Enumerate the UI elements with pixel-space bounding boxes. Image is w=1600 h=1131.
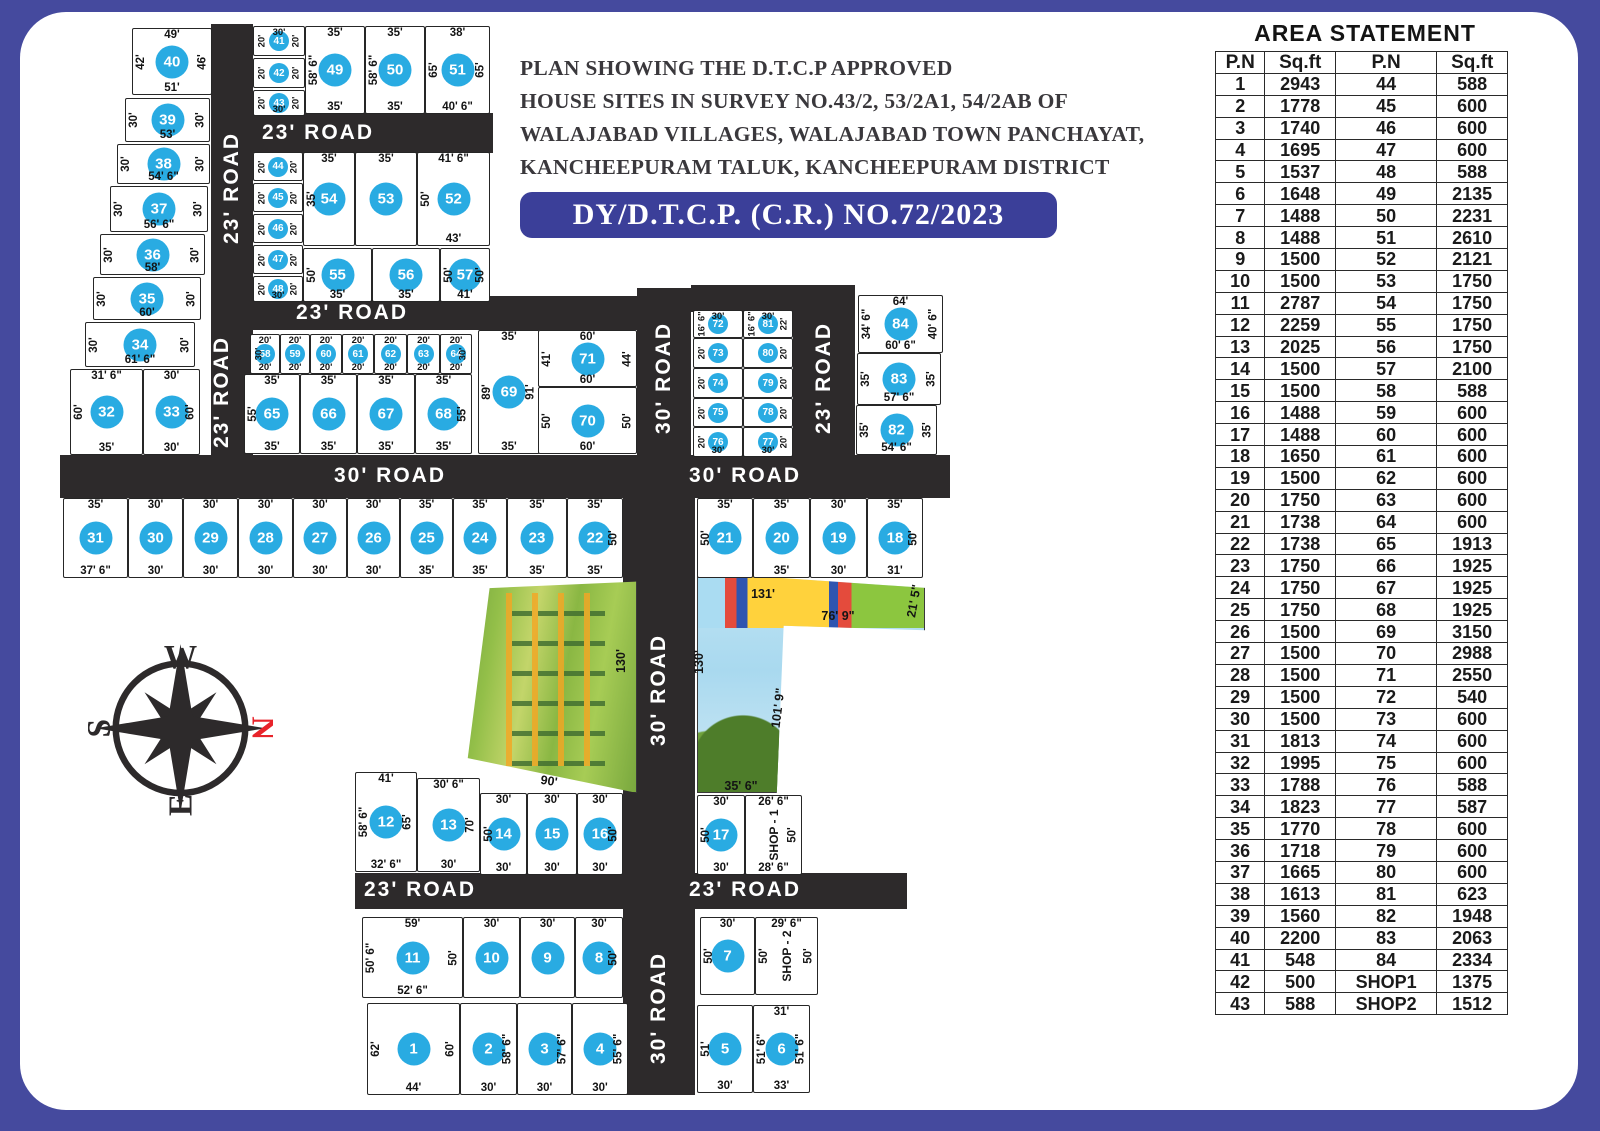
plot-13: 1330' 6"70'30' <box>417 778 480 872</box>
area-statement: AREA STATEMENT P.N Sq.ft P.N Sq.ft 12943… <box>1215 20 1515 1015</box>
plot-81: 8130'16' 6"22' <box>743 310 793 338</box>
dimension-label: 30' <box>592 794 608 806</box>
cell-sqft: 1488 <box>1265 424 1336 446</box>
cell-sqft: 1500 <box>1265 621 1336 643</box>
dimension-label: 30' <box>258 565 274 577</box>
cell-plot-number: 28 <box>1216 664 1265 686</box>
dimension-label: 35' <box>264 441 280 453</box>
dimension-label: 31' <box>887 565 903 577</box>
cell-plot-number: 44 <box>1336 73 1437 95</box>
cell-sqft: 1375 <box>1437 971 1508 993</box>
table-row: 19150062600 <box>1216 467 1508 489</box>
dimension-label: 65' <box>428 62 440 78</box>
plot-80: 8020' <box>743 338 793 368</box>
plot-number-74: 74 <box>708 373 728 393</box>
dimension-label: 30' <box>496 862 512 874</box>
dimension-label: 60' <box>73 404 85 420</box>
cell-sqft: 2943 <box>1265 73 1336 95</box>
table-row: 31181374600 <box>1216 730 1508 752</box>
dimension-label: 58' 6" <box>358 807 370 838</box>
plot-27: 2730'30' <box>293 498 347 578</box>
dimension-label: 50' 6" <box>365 942 377 973</box>
plot-62: 6220'20' <box>374 334 407 374</box>
plan-title-line: WALAJABAD VILLAGES, WALAJABAD TOWN PANCH… <box>520 118 1080 151</box>
cell-sqft: 600 <box>1437 117 1508 139</box>
dimension-label: 22' <box>779 318 790 331</box>
dimension-label: 35' <box>330 289 346 301</box>
dimension-label: 53' <box>160 129 176 141</box>
road-label: 23' ROAD <box>689 878 801 902</box>
dimension-label: 30' <box>120 156 132 172</box>
cell-plot-number: 60 <box>1336 424 1437 446</box>
cell-sqft: 1537 <box>1265 161 1336 183</box>
dimension-label: 20' <box>257 67 268 80</box>
dimension-label: 28' 6" <box>758 862 789 874</box>
plot-number-2: 2 <box>472 1033 505 1066</box>
cell-sqft: 1488 <box>1265 227 1336 249</box>
cell-plot-number: 25 <box>1216 599 1265 621</box>
park-dimension-label: 90' <box>540 773 559 789</box>
cell-plot-number: 14 <box>1216 358 1265 380</box>
dimension-label: 35' <box>859 422 871 438</box>
dimension-label: 30' <box>441 859 457 871</box>
dimension-label: 30' <box>712 311 725 322</box>
cell-plot-number: 35 <box>1216 818 1265 840</box>
dimension-label: 35' <box>378 375 394 387</box>
dimension-label: 70' <box>465 817 477 833</box>
dimension-label: 50' <box>908 530 920 546</box>
cell-plot-number: 19 <box>1216 467 1265 489</box>
plot-11: 1159'50' 6"50'52' 6" <box>362 917 463 998</box>
cell-plot-number: 75 <box>1336 752 1437 774</box>
dimension-label: 60' <box>139 307 155 319</box>
cell-plot-number: 22 <box>1216 533 1265 555</box>
cell-plot-number: 70 <box>1336 643 1437 665</box>
road <box>60 455 950 498</box>
plan-title-line: PLAN SHOWING THE D.T.C.P APPROVED <box>520 52 1080 85</box>
dimension-label: 55' <box>247 406 259 422</box>
dimension-label: 30' <box>481 1082 497 1094</box>
cell-sqft: 588 <box>1437 161 1508 183</box>
cell-sqft: 1750 <box>1265 489 1336 511</box>
cell-sqft: 1995 <box>1265 752 1336 774</box>
dimension-label: 30' <box>762 311 775 322</box>
plot-51: 5138'65'65'40' 6" <box>425 26 490 114</box>
cell-plot-number: 55 <box>1336 314 1437 336</box>
cell-plot-number: 65 <box>1336 533 1437 555</box>
cell-plot-number: 42 <box>1216 971 1265 993</box>
plot-38: 3830'54' 6"30' <box>117 144 210 184</box>
cell-sqft: 1613 <box>1265 883 1336 905</box>
dimension-label: 30' <box>203 499 219 511</box>
compass-letter-west: W <box>164 639 197 676</box>
plot-25: 2535'35' <box>400 498 453 578</box>
plot-53: 5335' <box>355 152 417 246</box>
plot-number-79: 79 <box>758 373 778 393</box>
dimension-label: 30' <box>113 201 125 217</box>
cell-plot-number: 3 <box>1216 117 1265 139</box>
dimension-label: 50' <box>608 530 620 546</box>
plot-number-56: 56 <box>390 259 423 292</box>
dimension-label: 20' <box>450 335 463 346</box>
table-row: 20175063600 <box>1216 489 1508 511</box>
plot-number-10: 10 <box>475 941 508 974</box>
plot-21: 2135'50' <box>697 498 753 578</box>
cell-plot-number: 52 <box>1336 249 1437 271</box>
dimension-label: 30' <box>592 1082 608 1094</box>
plot-15: 1530'30' <box>527 793 577 875</box>
dimension-label: 20' <box>257 283 268 296</box>
road-label: 30' ROAD <box>689 464 801 488</box>
cell-sqft: 1778 <box>1265 95 1336 117</box>
plot-number-12: 12 <box>370 806 403 839</box>
dimension-label: 60' <box>445 1041 457 1057</box>
dimension-label: 30' <box>312 499 328 511</box>
dimension-label: 34' 6" <box>861 309 873 340</box>
plot-number-70: 70 <box>571 404 604 437</box>
plot-number-60: 60 <box>316 344 336 364</box>
cell-sqft: 2231 <box>1437 205 1508 227</box>
dimension-label: 41' <box>378 773 394 785</box>
cell-sqft: 600 <box>1437 752 1508 774</box>
cell-sqft: 600 <box>1437 95 1508 117</box>
road-label: 23' ROAD <box>220 132 244 244</box>
cell-sqft: 600 <box>1437 139 1508 161</box>
dimension-label: 57' 6" <box>557 1034 569 1065</box>
cell-sqft: 1650 <box>1265 446 1336 468</box>
cell-sqft: 1488 <box>1265 402 1336 424</box>
cell-sqft: 1925 <box>1437 599 1508 621</box>
cell-sqft: 1718 <box>1265 840 1336 862</box>
dimension-label: 46' <box>197 54 209 70</box>
cell-plot-number: 73 <box>1336 708 1437 730</box>
cell-plot-number: 6 <box>1216 183 1265 205</box>
cell-plot-number: 43 <box>1216 993 1265 1015</box>
cell-sqft: 587 <box>1437 796 1508 818</box>
cell-sqft: 1695 <box>1265 139 1336 161</box>
plot-number-46: 46 <box>268 219 288 239</box>
plot-69: 6935'89'91'35' <box>478 330 540 454</box>
plan-title: PLAN SHOWING THE D.T.C.P APPROVED HOUSE … <box>520 52 1080 184</box>
dimension-label: 35' <box>774 499 790 511</box>
dimension-label: 20' <box>289 222 300 235</box>
cell-plot-number: 59 <box>1336 402 1437 424</box>
table-row: 15150058588 <box>1216 380 1508 402</box>
plot-2: 258' 6"30' <box>460 1003 517 1095</box>
table-row: 71488502231 <box>1216 205 1508 227</box>
cell-sqft: 2025 <box>1265 336 1336 358</box>
dimension-label: 50' <box>700 827 712 843</box>
plot-26: 2630'30' <box>347 498 400 578</box>
cell-sqft: 2550 <box>1437 664 1508 686</box>
dimension-label: 30' <box>544 794 560 806</box>
cell-plot-number: 17 <box>1216 424 1265 446</box>
dimension-label: 20' <box>779 406 790 419</box>
dimension-label: 41' <box>457 289 473 301</box>
plot-number-66: 66 <box>312 398 345 431</box>
dimension-label: 30' <box>540 918 556 930</box>
cell-sqft: 1648 <box>1265 183 1336 205</box>
cell-plot-number: 74 <box>1336 730 1437 752</box>
dimension-label: 40' 6" <box>928 309 940 340</box>
dimension-label: 20' <box>697 436 708 449</box>
plot-number-11: 11 <box>396 941 429 974</box>
cell-sqft: 600 <box>1437 424 1508 446</box>
cell-plot-number: 29 <box>1216 686 1265 708</box>
cell-sqft: 600 <box>1437 861 1508 883</box>
dimension-label: 30' <box>496 794 512 806</box>
cell-sqft: 1665 <box>1265 861 1336 883</box>
park-dimension-label: 76' 9" <box>821 609 854 623</box>
cell-plot-number: 31 <box>1216 730 1265 752</box>
dimension-label: 30' <box>831 565 847 577</box>
dimension-label: 20' <box>289 160 300 173</box>
plot-49: 4935'58' 6"35' <box>305 26 365 114</box>
plot-16: 1630'50'30' <box>577 793 623 875</box>
dimension-label: 31' <box>774 1006 790 1018</box>
plot-number-61: 61 <box>348 344 368 364</box>
cell-sqft: 1750 <box>1437 270 1508 292</box>
plot-83: 8335'57' 6"35' <box>857 353 941 405</box>
plot-number-59: 59 <box>285 344 305 364</box>
plot-18: 1835'50'31' <box>867 498 923 578</box>
dimension-label: 30' <box>148 499 164 511</box>
cell-sqft: 2100 <box>1437 358 1508 380</box>
cell-plot-number: 53 <box>1336 270 1437 292</box>
plot-73: 7320' <box>693 338 743 368</box>
dimension-label: 26' 6" <box>758 796 789 808</box>
cell-sqft: 600 <box>1437 467 1508 489</box>
dimension-label: 50' <box>541 413 553 429</box>
dimension-label: 35' <box>717 499 733 511</box>
plot-36: 3630'58'30' <box>100 234 205 275</box>
dimension-label: 30' <box>366 565 382 577</box>
plot-54: 5435'35' <box>303 152 355 246</box>
dimension-label: 50' <box>443 267 455 283</box>
dimension-label: 20' <box>291 67 302 80</box>
dimension-label: 35' <box>88 499 104 511</box>
plot-63: 6320'20' <box>407 334 440 374</box>
plot-19: 1930'30' <box>810 498 867 578</box>
plot-45: 4520'20' <box>253 183 303 212</box>
dimension-label: 50' <box>483 826 495 842</box>
cell-plot-number: 49 <box>1336 183 1437 205</box>
table-row: 42500SHOP11375 <box>1216 971 1508 993</box>
table-row: 21173864600 <box>1216 511 1508 533</box>
plot-number-9: 9 <box>531 941 564 974</box>
plot-number-20: 20 <box>765 522 798 555</box>
dimension-label: 60' <box>580 441 596 453</box>
plot-10: 1030' <box>463 917 520 998</box>
plot-32: 3231' 6"60'35' <box>70 369 143 455</box>
cell-plot-number: 36 <box>1216 840 1265 862</box>
dimension-label: 30' <box>831 499 847 511</box>
road-label: 23' ROAD <box>364 878 476 902</box>
cell-sqft: 623 <box>1437 883 1508 905</box>
dimension-label: 60' 6" <box>885 340 916 352</box>
plot-number-69: 69 <box>493 376 526 409</box>
dimension-label: 30' <box>591 918 607 930</box>
cell-sqft: 600 <box>1437 446 1508 468</box>
plot-number-53: 53 <box>370 183 403 216</box>
park-2 <box>697 570 925 793</box>
dimension-label: 16' 6" <box>747 311 758 336</box>
dimension-label: 44' <box>406 1082 422 1094</box>
cell-plot-number: 9 <box>1216 249 1265 271</box>
dimension-label: 20' <box>384 362 397 373</box>
table-row: 402200832063 <box>1216 927 1508 949</box>
cell-plot-number: 56 <box>1336 336 1437 358</box>
plot-number-49: 49 <box>319 54 352 87</box>
dimension-label: 62' <box>370 1041 382 1057</box>
dimension-label: 38' <box>450 27 466 39</box>
plot-79: 7920' <box>743 368 793 398</box>
plot-40: 4049'42'51'46' <box>132 28 212 95</box>
cell-plot-number: 69 <box>1336 621 1437 643</box>
plot-37: 3730'56' 6"30' <box>110 186 208 232</box>
table-row: 81488512610 <box>1216 227 1508 249</box>
cell-plot-number: 48 <box>1336 161 1437 183</box>
table-row: 281500712550 <box>1216 664 1508 686</box>
plot-number-4: 4 <box>584 1033 617 1066</box>
plot-77: 7720'30' <box>743 427 793 457</box>
dimension-label: 35' <box>587 565 603 577</box>
road-label: 30' ROAD <box>652 322 676 434</box>
plot-number-75: 75 <box>708 403 728 423</box>
table-row: 18165061600 <box>1216 446 1508 468</box>
dimension-label: 35' <box>472 499 488 511</box>
plot-number-52: 52 <box>437 183 470 216</box>
dimension-label: 30' <box>712 445 725 456</box>
dimension-label: 30' <box>180 337 192 353</box>
cell-plot-number: 57 <box>1336 358 1437 380</box>
cell-plot-number: 46 <box>1336 117 1437 139</box>
dimension-label: 30' <box>713 796 729 808</box>
dimension-label: 20' <box>259 362 272 373</box>
dimension-label: 35' <box>398 289 414 301</box>
table-row: 30150073600 <box>1216 708 1508 730</box>
dimension-label: 30' <box>713 862 729 874</box>
plot-39: 3930'53'30' <box>125 98 210 142</box>
cell-plot-number: 81 <box>1336 883 1437 905</box>
cell-plot-number: 39 <box>1216 905 1265 927</box>
plot-4: 455' 6"30' <box>572 1003 628 1095</box>
dimension-label: 30' <box>148 565 164 577</box>
dimension-label: 30' <box>312 565 328 577</box>
plan-title-line: KANCHEEPURAM TALUK, KANCHEEPURAM DISTRIC… <box>520 151 1080 184</box>
table-row: 43588SHOP21512 <box>1216 993 1508 1015</box>
cell-sqft: 600 <box>1437 818 1508 840</box>
col-header-pn: P.N <box>1336 52 1437 74</box>
cell-sqft: 588 <box>1437 73 1508 95</box>
dimension-label: 20' <box>450 362 463 373</box>
cell-plot-number: 12 <box>1216 314 1265 336</box>
cell-plot-number: 10 <box>1216 270 1265 292</box>
cell-sqft: 1512 <box>1437 993 1508 1015</box>
dimension-label: 31' 6" <box>91 370 122 382</box>
cell-sqft: 1823 <box>1265 796 1336 818</box>
dimension-label: 50' <box>787 827 799 843</box>
plot-74: 7420' <box>693 368 743 398</box>
cell-sqft: 1500 <box>1265 358 1336 380</box>
cell-plot-number: 15 <box>1216 380 1265 402</box>
plot-41: 4130'20'20' <box>253 26 305 56</box>
cell-sqft: 1500 <box>1265 380 1336 402</box>
dimension-label: 51' 6" <box>795 1034 807 1065</box>
cell-plot-number: 21 <box>1216 511 1265 533</box>
plot-9: 930' <box>520 917 575 998</box>
park-dimension-label: 131' <box>751 587 775 601</box>
table-row: 101500531750 <box>1216 270 1508 292</box>
plot-number-24: 24 <box>464 522 497 555</box>
dimension-label: 35' <box>529 565 545 577</box>
plot-shop-label: SHOP - 1 <box>767 809 781 860</box>
dimension-label: 35' <box>419 565 435 577</box>
cell-sqft: 1500 <box>1265 643 1336 665</box>
cell-plot-number: 5 <box>1216 161 1265 183</box>
table-row: 231750661925 <box>1216 555 1508 577</box>
plot-number-47: 47 <box>268 250 288 270</box>
col-header-sqft: Sq.ft <box>1265 52 1336 74</box>
cell-plot-number: SHOP1 <box>1336 971 1437 993</box>
dimension-label: 54' 6" <box>881 442 912 454</box>
plot-65: 6535'55'35' <box>244 374 300 454</box>
road-label: 23' ROAD <box>210 336 234 448</box>
table-row: 16148859600 <box>1216 402 1508 424</box>
dimension-label: 20' <box>289 191 300 204</box>
table-row: 122259551750 <box>1216 314 1508 336</box>
plot-number-84: 84 <box>884 308 917 341</box>
dimension-label: 30' <box>186 291 198 307</box>
cell-sqft: 2135 <box>1437 183 1508 205</box>
table-row: 33178876588 <box>1216 774 1508 796</box>
cell-plot-number: 24 <box>1216 577 1265 599</box>
plot-55: 5550'35' <box>303 248 372 302</box>
road-label: 30' ROAD <box>647 952 671 1064</box>
dimension-label: 20' <box>289 335 302 346</box>
cell-sqft: 600 <box>1437 840 1508 862</box>
road-label: 23' ROAD <box>812 322 836 434</box>
compass-letter-south: S <box>88 719 118 738</box>
plot-57: 5750'50'41' <box>440 248 490 302</box>
plot-58: 5820'20'30' <box>250 334 280 374</box>
cell-plot-number: 20 <box>1216 489 1265 511</box>
cell-plot-number: 79 <box>1336 840 1437 862</box>
plot-33: 3330'60'30' <box>143 369 200 455</box>
dimension-label: 50' <box>700 530 712 546</box>
dimension-label: 30' <box>484 918 500 930</box>
dimension-label: 20' <box>697 406 708 419</box>
plot-number-28: 28 <box>249 522 282 555</box>
compass-letter-east: E <box>163 794 200 816</box>
dimension-label: 43' <box>446 233 462 245</box>
dimension-label: 60' <box>185 404 197 420</box>
table-row: 4169547600 <box>1216 139 1508 161</box>
dimension-label: 30' <box>717 1080 733 1092</box>
dimension-label: 40' 6" <box>442 101 473 113</box>
dimension-label: 35' <box>327 27 343 39</box>
plot-48: 4820'20'30' <box>253 276 303 302</box>
plot-number-71: 71 <box>571 342 604 375</box>
dimension-label: 50' <box>420 191 432 207</box>
dimension-label: 50' <box>475 267 487 283</box>
cell-plot-number: 78 <box>1336 818 1437 840</box>
plot-number-1: 1 <box>397 1033 430 1066</box>
cell-plot-number: 34 <box>1216 796 1265 818</box>
table-row: 141500572100 <box>1216 358 1508 380</box>
plot-30: 3030'30' <box>128 498 183 578</box>
dimension-label: 32' 6" <box>371 859 402 871</box>
